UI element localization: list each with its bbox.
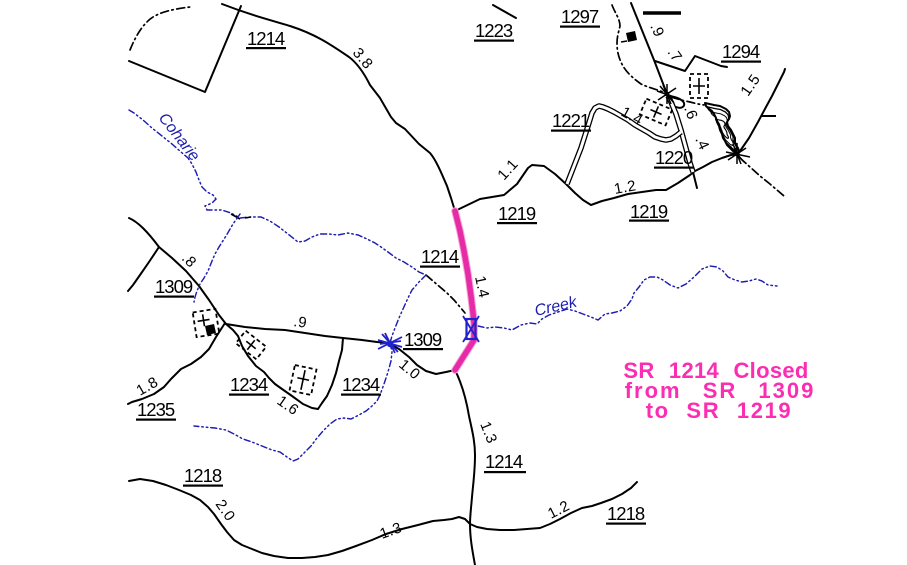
svg-text:1234: 1234	[342, 374, 380, 395]
svg-text:1214: 1214	[421, 246, 459, 267]
svg-text:1297: 1297	[561, 6, 599, 27]
svg-text:.9: .9	[292, 313, 308, 332]
svg-text:1218: 1218	[184, 465, 222, 486]
svg-text:1214: 1214	[247, 28, 285, 49]
svg-text:1221: 1221	[552, 110, 590, 131]
svg-text:1309: 1309	[155, 276, 193, 297]
svg-text:1235: 1235	[137, 399, 175, 420]
svg-text:1220: 1220	[655, 147, 693, 168]
svg-text:1214: 1214	[485, 451, 523, 472]
svg-text:to SR 1219: to SR 1219	[646, 398, 793, 423]
svg-text:1234: 1234	[230, 374, 268, 395]
svg-text:1309: 1309	[404, 329, 442, 350]
svg-text:1219: 1219	[630, 201, 668, 222]
svg-text:1219: 1219	[498, 203, 536, 224]
svg-text:1223: 1223	[475, 20, 513, 41]
svg-text:1294: 1294	[722, 41, 760, 62]
svg-text:1218: 1218	[607, 503, 645, 524]
